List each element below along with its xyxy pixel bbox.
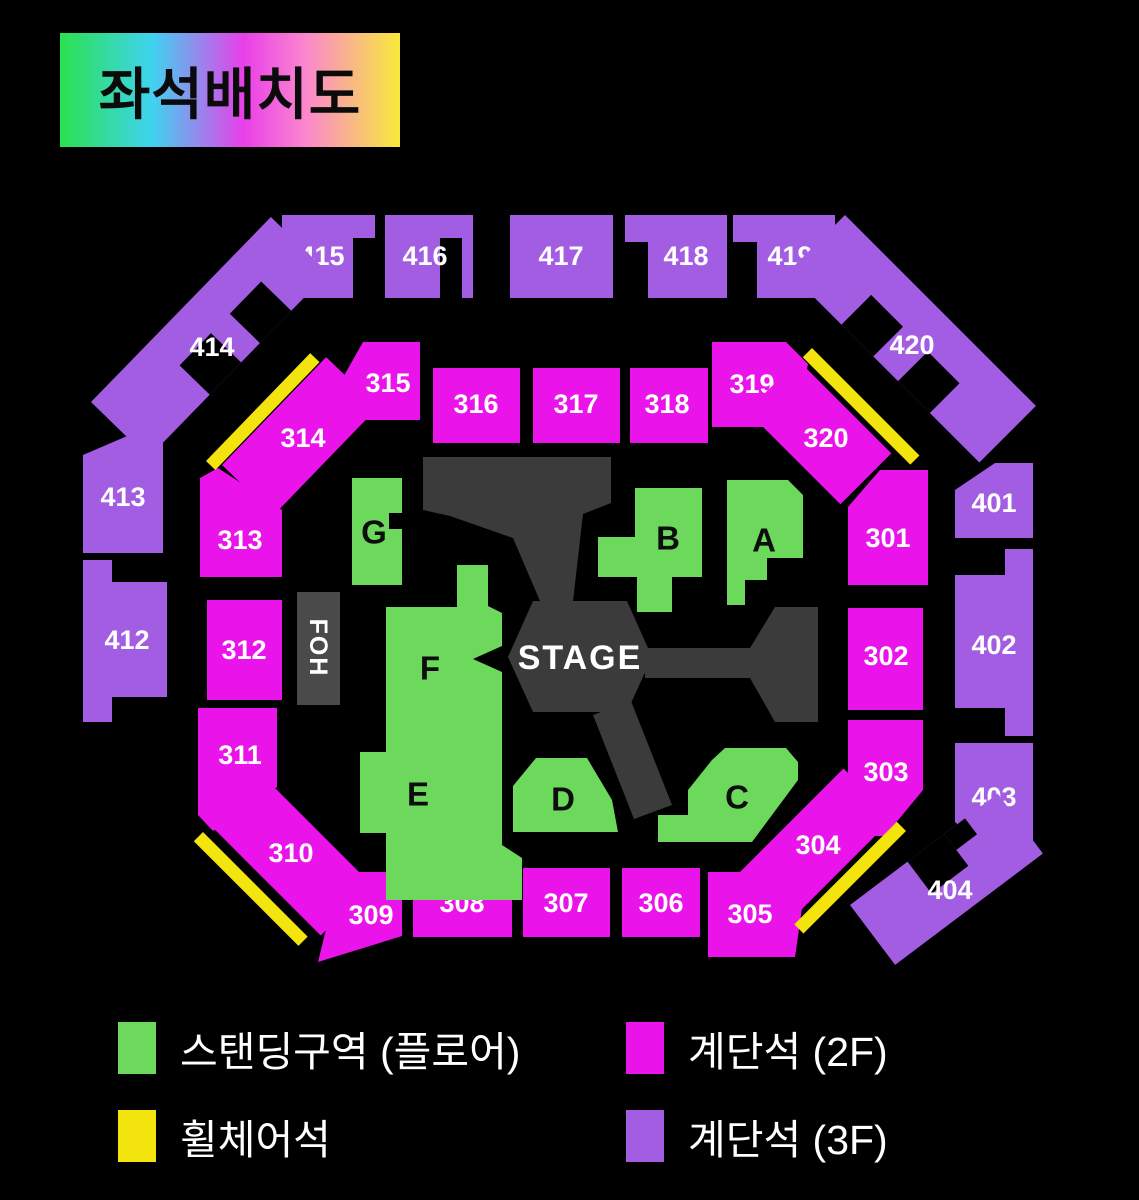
legend-item-2f: 계단석 (2F) (626, 1018, 1048, 1078)
legend-label-wheelchair: 휠체어석 (180, 1106, 331, 1166)
section-417-label: 417 (538, 241, 583, 271)
section-420-label: 420 (889, 330, 934, 360)
section-floor-A[interactable]: A (727, 480, 803, 605)
section-404-label: 404 (927, 875, 972, 905)
section-floor-F-shape[interactable] (386, 565, 522, 900)
section-316-label: 316 (453, 389, 498, 419)
foh-label: FOH (304, 619, 332, 678)
section-416-label: 416 (402, 241, 447, 271)
section-floor-B-shape[interactable] (598, 488, 702, 612)
section-floor-E-label: E (407, 776, 429, 813)
legend-item-standing: 스탠딩구역 (플로어) (118, 1018, 626, 1078)
section-310-label: 310 (268, 838, 313, 868)
section-floor-C-label: C (725, 779, 749, 816)
section-309-label: 309 (348, 900, 393, 930)
section-418-label: 418 (663, 241, 708, 271)
stage-label: STAGE (518, 639, 643, 677)
section-floor-D[interactable]: D (513, 758, 618, 832)
section-floor-G[interactable]: G (352, 478, 402, 585)
section-floor-F[interactable]: F (386, 565, 522, 900)
section-302-label: 302 (863, 641, 908, 671)
section-418[interactable]: 418 (625, 215, 727, 298)
section-304-label: 304 (795, 830, 840, 860)
legend-item-3f: 계단석 (3F) (626, 1106, 1048, 1166)
tier-2f-swatch-icon (626, 1022, 664, 1074)
section-412-label: 412 (104, 625, 149, 655)
legend-label-standing: 스탠딩구역 (플로어) (180, 1018, 520, 1078)
wheelchair-swatch-icon (118, 1110, 156, 1162)
section-402-label: 402 (971, 630, 1016, 660)
section-307-label: 307 (543, 888, 588, 918)
section-305-label: 305 (727, 899, 772, 929)
section-floor-F-label: F (420, 650, 440, 687)
section-413[interactable]: 413 (83, 427, 163, 553)
legend-label-2f: 계단석 (2F) (688, 1018, 888, 1078)
stage: STAGE (508, 601, 652, 712)
tier-3f-swatch-icon (626, 1110, 664, 1162)
section-312[interactable]: 312 (207, 600, 282, 700)
section-314-label: 314 (280, 423, 325, 453)
section-417[interactable]: 417 (510, 215, 613, 298)
section-floor-D-label: D (551, 781, 575, 818)
section-317-label: 317 (553, 389, 598, 419)
legend-item-wheelchair: 휠체어석 (118, 1106, 626, 1166)
foh-booth: FOH (297, 592, 340, 705)
section-401[interactable]: 401 (955, 463, 1033, 538)
section-413-label: 413 (100, 482, 145, 512)
legend: 스탠딩구역 (플로어) 계단석 (2F) 휠체어석 계단석 (3F) (118, 1018, 1048, 1166)
section-312-label: 312 (221, 635, 266, 665)
section-306[interactable]: 306 (622, 868, 700, 937)
section-floor-B[interactable]: B (598, 488, 702, 612)
standing-floor-swatch-icon (118, 1022, 156, 1074)
section-floor-G-label: G (361, 514, 387, 551)
legend-label-3f: 계단석 (3F) (688, 1106, 888, 1166)
seating-chart-page: 좌석배치도 415 416 417 418 419 (0, 0, 1139, 1200)
section-floor-C[interactable]: C (658, 748, 798, 842)
section-317[interactable]: 317 (533, 368, 620, 443)
section-301[interactable]: 301 (848, 470, 928, 585)
section-313-label: 313 (217, 525, 262, 555)
section-414-label: 414 (189, 332, 234, 362)
section-401-label: 401 (971, 488, 1016, 518)
section-311-label: 311 (218, 740, 262, 770)
section-floor-B-label: B (656, 520, 680, 557)
section-315-label: 315 (365, 368, 410, 398)
section-306-label: 306 (638, 888, 683, 918)
section-307[interactable]: 307 (523, 868, 610, 937)
section-303-label: 303 (863, 757, 908, 787)
section-floor-A-label: A (752, 522, 776, 559)
section-320-label: 320 (803, 423, 848, 453)
section-318[interactable]: 318 (630, 368, 708, 443)
section-316[interactable]: 316 (433, 368, 520, 443)
section-412[interactable]: 412 (83, 560, 167, 722)
stage-runway-right (645, 607, 818, 722)
section-301-label: 301 (865, 523, 910, 553)
section-302[interactable]: 302 (848, 608, 923, 710)
seat-map: 415 416 417 418 419 414 (0, 0, 1139, 1000)
section-402[interactable]: 402 (955, 549, 1033, 736)
section-318-label: 318 (644, 389, 689, 419)
section-416[interactable]: 416 (385, 215, 473, 298)
stage-apron (423, 457, 611, 601)
